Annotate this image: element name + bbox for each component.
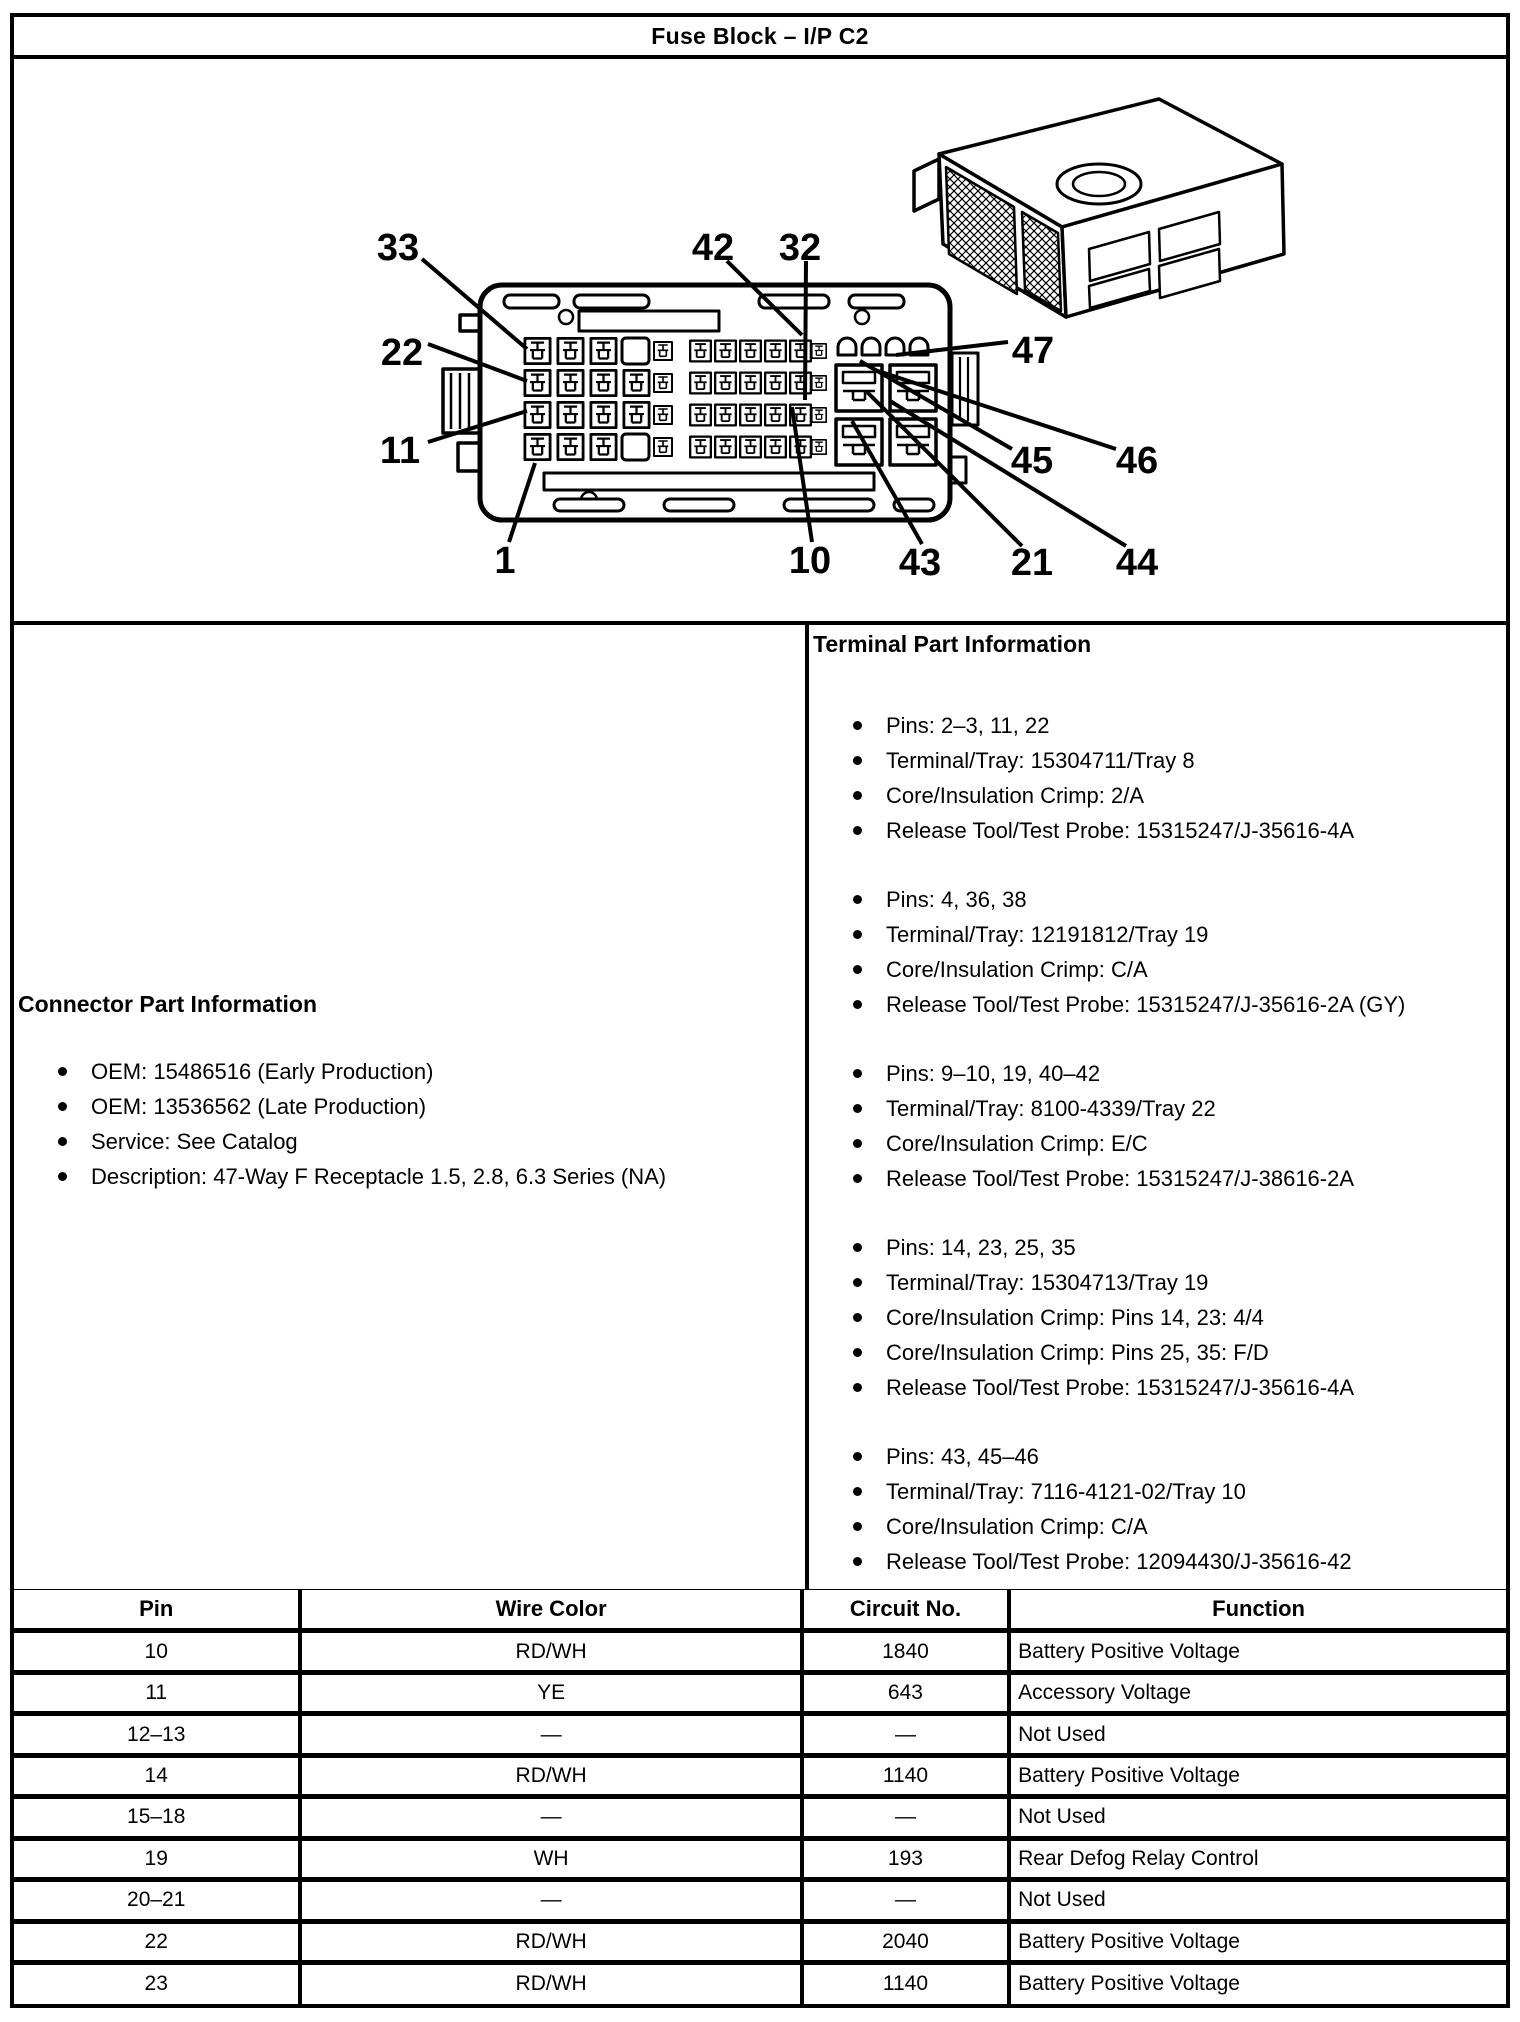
bullet-icon <box>853 1313 862 1322</box>
list-item: OEM: 15486516 (Early Production) <box>18 1054 801 1089</box>
list-item: Service: See Catalog <box>18 1124 801 1159</box>
list-item: Core/Insulation Crimp: E/C <box>813 1126 1502 1161</box>
terminal-info-item: Release Tool/Test Probe: 15315247/J-3561… <box>886 987 1405 1022</box>
connector-part-information-panel: Connector Part Information OEM: 15486516… <box>14 625 809 1589</box>
wire-color-cell: WH <box>300 1838 801 1879</box>
column-header-wire-color: Wire Color <box>300 1590 801 1631</box>
bullet-icon <box>853 1069 862 1078</box>
connector-info-item: OEM: 15486516 (Early Production) <box>91 1054 433 1089</box>
pin-cell: 20–21 <box>14 1880 300 1921</box>
terminal-info-item: Terminal/Tray: 7116-4121-02/Tray 10 <box>886 1474 1246 1509</box>
bullet-icon <box>853 1104 862 1113</box>
function-cell: Not Used <box>1009 1880 1506 1921</box>
bullet-icon <box>58 1067 67 1076</box>
bullet-icon <box>58 1102 67 1111</box>
pin-cell: 19 <box>14 1838 300 1879</box>
bullet-icon <box>58 1172 67 1181</box>
bullet-icon <box>853 1174 862 1183</box>
table-row: 11 YE 643 Accessory Voltage <box>14 1672 1506 1713</box>
callout-45: 45 <box>1011 440 1053 482</box>
list-item: Core/Insulation Crimp: C/A <box>813 952 1502 987</box>
terminal-info-item: Pins: 4, 36, 38 <box>886 882 1027 917</box>
circuit-no-cell: — <box>802 1714 1009 1755</box>
terminal-info-item: Core/Insulation Crimp: C/A <box>886 952 1148 987</box>
bullet-icon <box>853 1278 862 1287</box>
table-row: 12–13 — — Not Used <box>14 1714 1506 1755</box>
pin-cell: 10 <box>14 1631 300 1672</box>
terminal-info-item: Release Tool/Test Probe: 15315247/J-3861… <box>886 1161 1354 1196</box>
list-item: Terminal/Tray: 15304711/Tray 8 <box>813 743 1502 778</box>
table-row: 15–18 — — Not Used <box>14 1797 1506 1838</box>
list-item: Terminal/Tray: 15304713/Tray 19 <box>813 1265 1502 1300</box>
terminal-info-item: Pins: 9–10, 19, 40–42 <box>886 1056 1100 1091</box>
terminal-info-item: Terminal/Tray: 12191812/Tray 19 <box>886 917 1208 952</box>
page-title: Fuse Block – I/P C2 <box>651 23 868 50</box>
function-cell: Accessory Voltage <box>1009 1672 1506 1713</box>
list-item: Terminal/Tray: 12191812/Tray 19 <box>813 917 1502 952</box>
connector-diagram-section: 33 42 32 22 11 1 10 43 21 44 45 46 47 <box>14 59 1506 621</box>
bullet-icon <box>853 1557 862 1566</box>
function-cell: Not Used <box>1009 1797 1506 1838</box>
table-row: 19 WH 193 Rear Defog Relay Control <box>14 1838 1506 1879</box>
list-item: Release Tool/Test Probe: 15315247/J-3861… <box>813 1161 1502 1196</box>
terminal-info-item: Core/Insulation Crimp: C/A <box>886 1509 1148 1544</box>
terminal-info-item: Core/Insulation Crimp: 2/A <box>886 778 1144 813</box>
list-item: Description: 47-Way F Receptacle 1.5, 2.… <box>18 1159 801 1194</box>
table-row: 14 RD/WH 1140 Battery Positive Voltage <box>14 1755 1506 1796</box>
wire-color-cell: RD/WH <box>300 1962 801 2004</box>
bullet-icon <box>853 895 862 904</box>
terminal-info-item: Release Tool/Test Probe: 15315247/J-3561… <box>886 1370 1354 1405</box>
wire-color-cell: — <box>300 1714 801 1755</box>
wire-color-cell: RD/WH <box>300 1755 801 1796</box>
column-header-pin: Pin <box>14 1590 300 1631</box>
callout-22: 22 <box>381 332 423 374</box>
callout-43: 43 <box>899 542 941 584</box>
terminal-group-1: Pins: 2–3, 11, 22 Terminal/Tray: 1530471… <box>813 708 1502 848</box>
bullet-icon <box>853 721 862 730</box>
wire-color-cell: — <box>300 1797 801 1838</box>
pin-cell: 15–18 <box>14 1797 300 1838</box>
function-cell: Rear Defog Relay Control <box>1009 1838 1506 1879</box>
callout-21: 21 <box>1011 542 1053 584</box>
list-item: Pins: 2–3, 11, 22 <box>813 708 1502 743</box>
document-frame: Fuse Block – I/P C2 <box>10 13 1510 2008</box>
list-item: Core/Insulation Crimp: 2/A <box>813 778 1502 813</box>
callout-46: 46 <box>1116 440 1158 482</box>
connector-info-item: OEM: 13536562 (Late Production) <box>91 1089 426 1124</box>
title-bar: Fuse Block – I/P C2 <box>14 17 1506 59</box>
list-item: OEM: 13536562 (Late Production) <box>18 1089 801 1124</box>
table-row: 23 RD/WH 1140 Battery Positive Voltage <box>14 1962 1506 2004</box>
list-item: Core/Insulation Crimp: C/A <box>813 1509 1502 1544</box>
terminal-info-item: Terminal/Tray: 15304713/Tray 19 <box>886 1265 1208 1300</box>
wire-color-cell: YE <box>300 1672 801 1713</box>
connector-3d-view <box>914 99 1284 317</box>
list-item: Pins: 9–10, 19, 40–42 <box>813 1056 1502 1091</box>
list-item: Core/Insulation Crimp: Pins 25, 35: F/D <box>813 1335 1502 1370</box>
terminal-part-information-panel: Terminal Part Information Pins: 2–3, 11,… <box>809 625 1506 1589</box>
terminal-info-item: Core/Insulation Crimp: Pins 25, 35: F/D <box>886 1335 1269 1370</box>
terminal-info-item: Pins: 2–3, 11, 22 <box>886 708 1050 743</box>
list-item: Release Tool/Test Probe: 15315247/J-3561… <box>813 813 1502 848</box>
callout-11: 11 <box>380 430 420 472</box>
circuit-no-cell: 193 <box>802 1838 1009 1879</box>
bullet-icon <box>853 965 862 974</box>
callout-44: 44 <box>1116 542 1158 584</box>
connector-diagram: 33 42 32 22 11 1 10 43 21 44 45 46 47 <box>14 59 1506 621</box>
terminal-info-item: Core/Insulation Crimp: Pins 14, 23: 4/4 <box>886 1300 1264 1335</box>
circuit-no-cell: 1140 <box>802 1962 1009 2004</box>
callout-42: 42 <box>692 227 734 269</box>
list-item: Release Tool/Test Probe: 15315247/J-3561… <box>813 1370 1502 1405</box>
column-header-circuit-no: Circuit No. <box>802 1590 1009 1631</box>
pin-cell: 11 <box>14 1672 300 1713</box>
info-section: Connector Part Information OEM: 15486516… <box>14 621 1506 1589</box>
callout-1: 1 <box>494 540 515 582</box>
list-item: Release Tool/Test Probe: 12094430/J-3561… <box>813 1544 1502 1579</box>
bullet-icon <box>853 1348 862 1357</box>
bullet-icon <box>853 930 862 939</box>
terminal-group-3: Pins: 9–10, 19, 40–42 Terminal/Tray: 810… <box>813 1056 1502 1196</box>
connector-face-view <box>443 285 978 520</box>
terminal-info-item: Release Tool/Test Probe: 15315247/J-3561… <box>886 813 1354 848</box>
bullet-icon <box>853 1522 862 1531</box>
column-header-function: Function <box>1009 1590 1506 1631</box>
bullet-icon <box>853 1452 862 1461</box>
terminal-info-item: Pins: 14, 23, 25, 35 <box>886 1230 1076 1265</box>
list-item: Release Tool/Test Probe: 15315247/J-3561… <box>813 987 1502 1022</box>
function-cell: Battery Positive Voltage <box>1009 1962 1506 2004</box>
terminal-group-4: Pins: 14, 23, 25, 35 Terminal/Tray: 1530… <box>813 1230 1502 1405</box>
wire-color-cell: RD/WH <box>300 1921 801 1962</box>
circuit-no-cell: 1840 <box>802 1631 1009 1672</box>
table-row: 22 RD/WH 2040 Battery Positive Voltage <box>14 1921 1506 1962</box>
connector-info-heading: Connector Part Information <box>18 991 801 1018</box>
function-cell: Not Used <box>1009 1714 1506 1755</box>
bullet-icon <box>853 791 862 800</box>
pin-cell: 14 <box>14 1755 300 1796</box>
circuit-no-cell: 643 <box>802 1672 1009 1713</box>
circuit-no-cell: — <box>802 1880 1009 1921</box>
list-item: Terminal/Tray: 7116-4121-02/Tray 10 <box>813 1474 1502 1509</box>
list-item: Pins: 14, 23, 25, 35 <box>813 1230 1502 1265</box>
bullet-icon <box>853 826 862 835</box>
callout-33: 33 <box>377 227 419 269</box>
list-item: Pins: 4, 36, 38 <box>813 882 1502 917</box>
bullet-icon <box>853 1000 862 1009</box>
terminal-group-2: Pins: 4, 36, 38 Terminal/Tray: 12191812/… <box>813 882 1502 1022</box>
terminal-info-item: Release Tool/Test Probe: 12094430/J-3561… <box>886 1544 1352 1579</box>
function-cell: Battery Positive Voltage <box>1009 1631 1506 1672</box>
circuit-no-cell: 1140 <box>802 1755 1009 1796</box>
list-item: Core/Insulation Crimp: Pins 14, 23: 4/4 <box>813 1300 1502 1335</box>
function-cell: Battery Positive Voltage <box>1009 1755 1506 1796</box>
bullet-icon <box>853 1487 862 1496</box>
pin-cell: 23 <box>14 1962 300 2004</box>
bullet-icon <box>58 1137 67 1146</box>
list-item: Pins: 43, 45–46 <box>813 1439 1502 1474</box>
pin-cell: 22 <box>14 1921 300 1962</box>
wire-color-cell: RD/WH <box>300 1631 801 1672</box>
list-item: Terminal/Tray: 8100-4339/Tray 22 <box>813 1091 1502 1126</box>
connector-info-item: Description: 47-Way F Receptacle 1.5, 2.… <box>91 1159 666 1194</box>
terminal-info-item: Core/Insulation Crimp: E/C <box>886 1126 1148 1161</box>
bullet-icon <box>853 1139 862 1148</box>
bullet-icon <box>853 756 862 765</box>
terminal-group-5: Pins: 43, 45–46 Terminal/Tray: 7116-4121… <box>813 1439 1502 1579</box>
circuit-no-cell: — <box>802 1797 1009 1838</box>
circuit-no-cell: 2040 <box>802 1921 1009 1962</box>
terminal-info-item: Pins: 43, 45–46 <box>886 1439 1039 1474</box>
pin-table: Pin Wire Color Circuit No. Function 10 R… <box>14 1589 1506 2004</box>
pin-cell: 12–13 <box>14 1714 300 1755</box>
wire-color-cell: — <box>300 1880 801 1921</box>
table-row: 10 RD/WH 1840 Battery Positive Voltage <box>14 1631 1506 1672</box>
terminal-info-item: Terminal/Tray: 15304711/Tray 8 <box>886 743 1195 778</box>
callout-47: 47 <box>1012 330 1054 372</box>
callout-10: 10 <box>789 540 831 582</box>
bullet-icon <box>853 1383 862 1392</box>
bullet-icon <box>853 1243 862 1252</box>
table-header-row: Pin Wire Color Circuit No. Function <box>14 1590 1506 1631</box>
callout-32: 32 <box>779 227 821 269</box>
function-cell: Battery Positive Voltage <box>1009 1921 1506 1962</box>
table-row: 20–21 — — Not Used <box>14 1880 1506 1921</box>
connector-info-item: Service: See Catalog <box>91 1124 298 1159</box>
terminal-info-item: Terminal/Tray: 8100-4339/Tray 22 <box>886 1091 1216 1126</box>
terminal-info-heading: Terminal Part Information <box>813 631 1502 658</box>
